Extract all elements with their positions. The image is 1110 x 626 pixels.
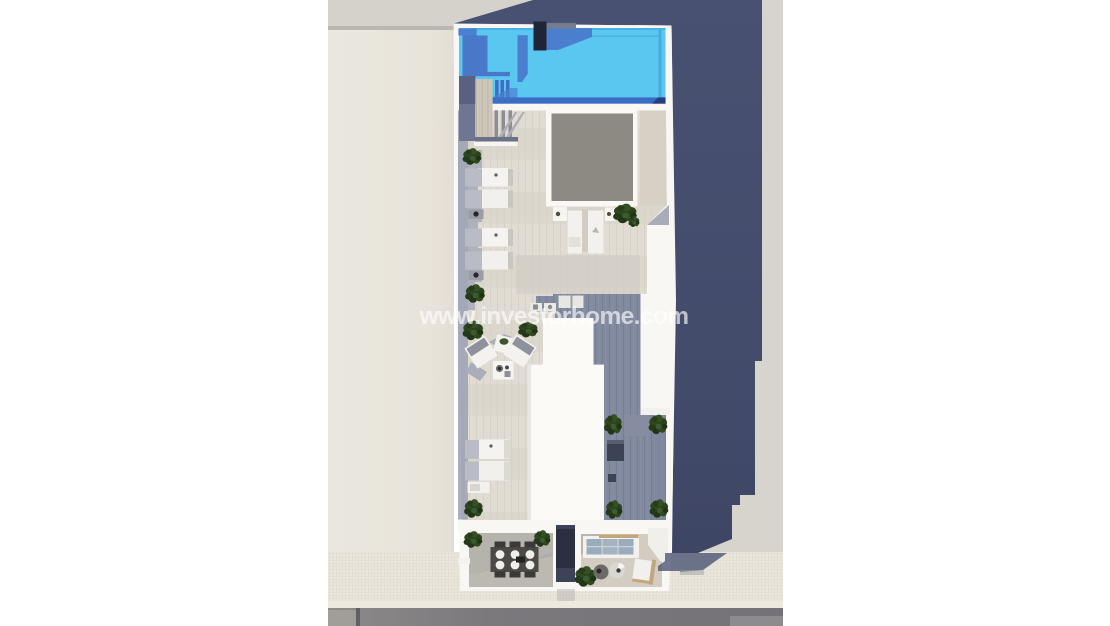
svg-text:www.investorhome.com: www.investorhome.com [419,303,689,330]
